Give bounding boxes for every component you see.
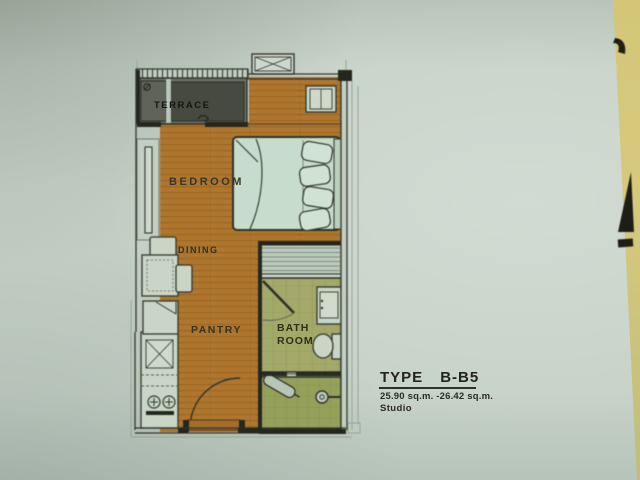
- kitchen-counter: [141, 332, 178, 428]
- wardrobe: [306, 86, 336, 112]
- sink-icon: [146, 340, 173, 368]
- terrace-railing: [136, 69, 248, 78]
- desk-objects: [613, 38, 634, 247]
- desk-object-triangle: [618, 172, 634, 232]
- bathroom-area: [261, 278, 341, 372]
- ac-condenser-icon: [252, 54, 294, 74]
- bedroom-window: [137, 139, 159, 240]
- toilet-icon: [313, 334, 341, 359]
- floor-plan-drawing: [0, 0, 640, 480]
- bed: [233, 137, 341, 231]
- shower-area: [261, 372, 341, 429]
- desk-object-bar: [618, 238, 634, 247]
- photo-background: TERRACE BEDROOM DINING PANTRY BATH ROOM …: [0, 0, 640, 480]
- bathroom-vanity-sink: [317, 287, 341, 324]
- terrace-area: [136, 69, 248, 124]
- refrigerator: [143, 301, 178, 334]
- desk-object-hook: [613, 38, 625, 54]
- terrace-door-gap: [166, 79, 171, 123]
- closet: [258, 241, 346, 274]
- headboard: [334, 139, 341, 229]
